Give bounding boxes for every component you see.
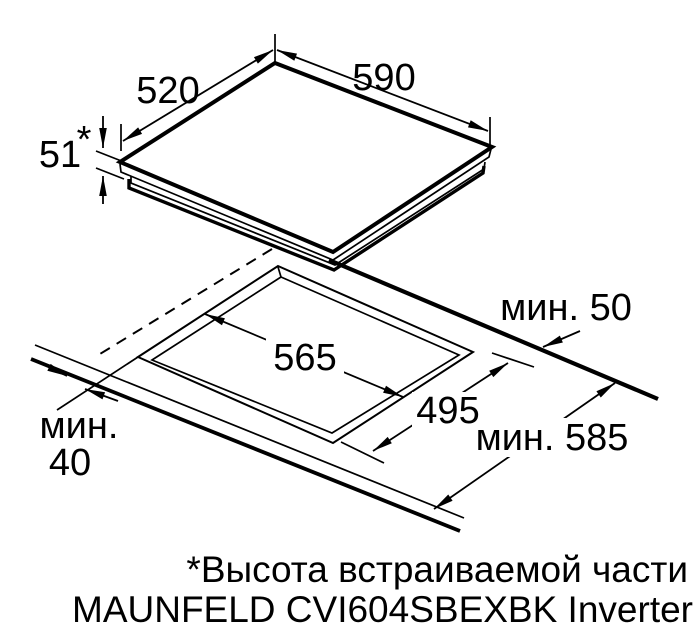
cutout-edge-extension [57,357,138,410]
footnote-model: MAUNFELD CVI604SBEXBK Inverter [72,589,693,630]
dim-min-40 [36,361,118,401]
installation-diagram-svg: 520 590 51 * 565 495 мин. 50 мин. 585 ми… [0,0,700,636]
installation-diagram: 520 590 51 * 565 495 мин. 50 мин. 585 ми… [0,0,700,636]
label-height-star: * [77,119,92,161]
min-40-arrow-a [36,361,67,376]
footnote-height-note: *Высота встраиваемой части [186,549,688,590]
label-min-585: мин. 585 [476,417,629,459]
dim-495-tick-right [492,353,534,367]
label-cutout-565: 565 [273,337,336,379]
dim-495-tick-bottom [341,442,384,463]
label-cutout-495: 495 [416,390,479,432]
dim-51-tick-top [96,151,124,162]
dim-51 [96,116,124,204]
dim-min-50-arrow [543,331,580,347]
label-depth-520: 520 [136,70,199,112]
dim-51-tick-bottom [96,168,124,179]
label-height-51: 51 [39,134,81,176]
label-width-590: 590 [352,57,415,99]
label-min-40-value: 40 [49,442,91,484]
label-min-40-word: мин. [40,405,119,447]
label-min-50: мин. 50 [500,287,632,329]
